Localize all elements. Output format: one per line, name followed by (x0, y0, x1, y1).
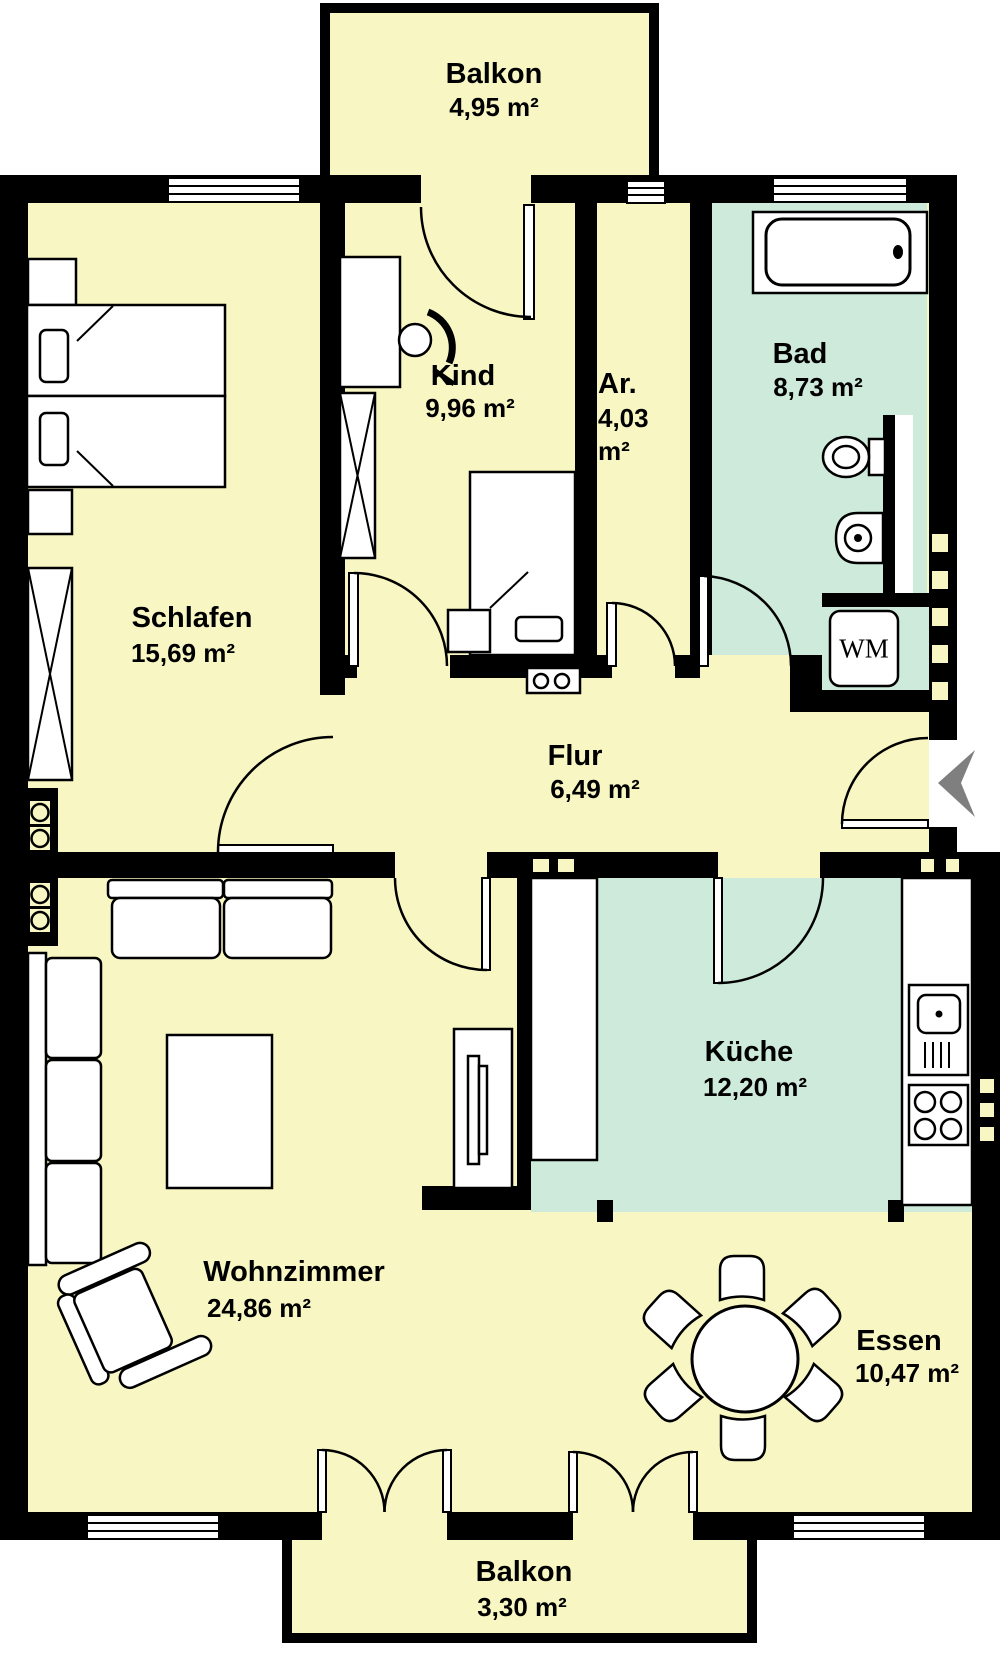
room-area-bad: 8,73 m² (773, 372, 863, 403)
wall-kitchen-left (517, 878, 531, 1210)
wall-kind-ar (575, 203, 597, 660)
kueche-door-leaf (714, 878, 722, 983)
schlafen-door-leaf (218, 845, 333, 853)
toilet-icon (823, 437, 869, 477)
room-label-wohnzimmer: Wohnzimmer (203, 1256, 385, 1289)
opening-kind-door (357, 655, 450, 678)
opening-wohnzimmer-door (395, 852, 487, 878)
nightstand-icon (28, 490, 72, 534)
opening-bad-door (700, 655, 790, 678)
window-ar (627, 181, 665, 203)
couch-seat-icon (46, 1163, 101, 1263)
dining-table-icon (692, 1306, 798, 1412)
sofa-seat-icon (224, 898, 331, 958)
window-wohnzimmer (87, 1515, 219, 1539)
toilet-tank-icon (869, 439, 885, 475)
room-label-schlafen: Schlafen (132, 602, 253, 635)
opening-kueche-door (718, 852, 820, 878)
wall-right-lower (972, 878, 1000, 1540)
room-label-balkon-bottom: Balkon (476, 1556, 573, 1589)
washing-machine-label: WM (839, 634, 889, 665)
coffee-table-icon (167, 1035, 272, 1188)
pillow-icon (516, 617, 562, 641)
window-bad (773, 178, 907, 202)
opening-balcony-door (421, 175, 531, 203)
french-door-leaf (443, 1450, 451, 1512)
room-area-flur: 6,49 m² (550, 774, 640, 805)
room-area-ar: 4,03 m² (598, 402, 678, 467)
wall-niche-top (822, 593, 929, 607)
room-label-flur: Flur (548, 740, 603, 773)
desk-chair-icon (399, 324, 431, 356)
couch-back-icon (28, 953, 46, 1265)
couch-seat-icon (46, 1060, 101, 1161)
balcony-bottom-outline (287, 1540, 752, 1638)
wall-corner-bad (790, 655, 822, 712)
entrance-door-leaf (842, 820, 928, 828)
sofa-back-icon (224, 880, 332, 898)
room-area-wohnzimmer: 24,86 m² (207, 1293, 311, 1324)
window-schlafen (168, 178, 300, 202)
room-area-schlafen: 15,69 m² (131, 638, 235, 669)
room-label-ar-block: Ar. 4,03 m² (598, 366, 678, 467)
floor-plan: Balkon 4,95 m² Kind 9,96 m² Ar. 4,03 m² … (0, 0, 1000, 1654)
french-door-leaf (689, 1452, 697, 1512)
sofa-back-icon (108, 880, 223, 898)
bathtub-icon (766, 219, 910, 285)
tv-screen-icon (479, 1066, 487, 1154)
french-door-leaf (569, 1452, 577, 1512)
room-area-kueche: 12,20 m² (703, 1072, 807, 1103)
couch-seat-icon (46, 958, 101, 1058)
bedside-table-icon (448, 610, 490, 652)
pillow-icon (40, 330, 68, 382)
opening-french-door-2 (573, 1512, 693, 1540)
bathtub-drain-icon (893, 245, 903, 259)
room-label-balkon-top: Balkon (446, 58, 543, 91)
opening-ar-door (612, 655, 675, 678)
tv-icon (468, 1056, 479, 1164)
balcony-door-leaf (524, 205, 534, 319)
wall-niche-bottom (822, 690, 929, 712)
floor-plan-drawing (0, 0, 1000, 1654)
wall-stub-kitchen-left (597, 1200, 613, 1222)
french-door-leaf (318, 1450, 326, 1512)
window-essen (793, 1515, 925, 1539)
duct-strip (895, 415, 913, 593)
chair-icon (720, 1256, 764, 1300)
ar-door-leaf (607, 603, 616, 666)
room-label-bad: Bad (773, 338, 828, 371)
nightstand-icon (28, 259, 76, 305)
wall-middle-horizontal (0, 852, 1000, 878)
chair-icon (721, 1416, 765, 1460)
hallway-cabinet-icon (527, 668, 580, 693)
desk-icon (340, 257, 400, 387)
room-area-kind: 9,96 m² (425, 393, 515, 424)
pillow-icon (40, 413, 68, 465)
room-area-essen: 10,47 m² (855, 1358, 959, 1389)
opening-french-door-1 (322, 1512, 447, 1540)
room-label-ar: Ar. (598, 366, 678, 402)
kitchen-counter-left-icon (531, 878, 597, 1160)
room-label-kind: Kind (431, 360, 495, 393)
wohnzimmer-door-leaf (482, 878, 490, 970)
bad-door-leaf (699, 576, 708, 666)
room-area-balkon-bottom: 3,30 m² (477, 1592, 567, 1623)
sofa-seat-icon (112, 898, 220, 958)
kind-door-leaf (349, 573, 358, 666)
wall-stub-livingroom (422, 1186, 531, 1210)
room-area-balkon-top: 4,95 m² (449, 92, 539, 123)
room-label-essen: Essen (856, 1325, 941, 1358)
room-label-kueche: Küche (705, 1036, 794, 1069)
